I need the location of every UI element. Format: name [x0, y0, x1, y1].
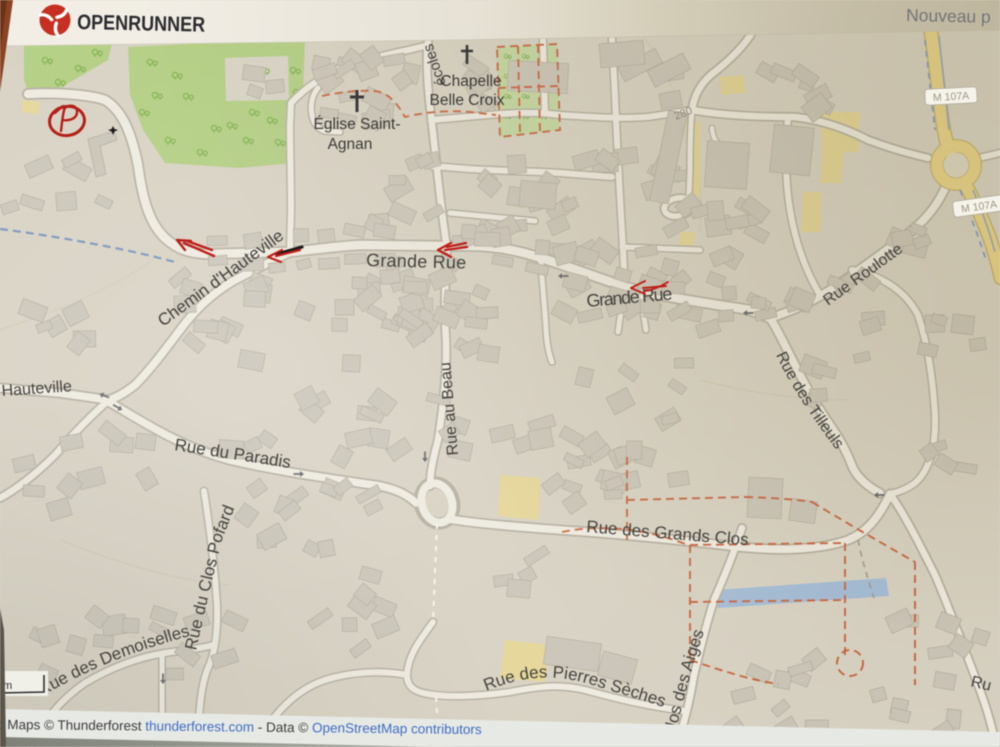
- svg-text:M 107A: M 107A: [933, 90, 970, 104]
- svg-text:Agnan: Agnan: [328, 136, 373, 153]
- svg-text:Nouveau p: Nouveau p: [906, 5, 991, 27]
- svg-text:Belle Croix: Belle Croix: [430, 92, 505, 109]
- svg-text:OPENRUNNER: OPENRUNNER: [77, 11, 205, 37]
- svg-text:Chapelle: Chapelle: [440, 73, 501, 90]
- svg-text:Grande Rue: Grande Rue: [366, 250, 466, 273]
- svg-text:Église Saint-: Église Saint-: [313, 116, 400, 133]
